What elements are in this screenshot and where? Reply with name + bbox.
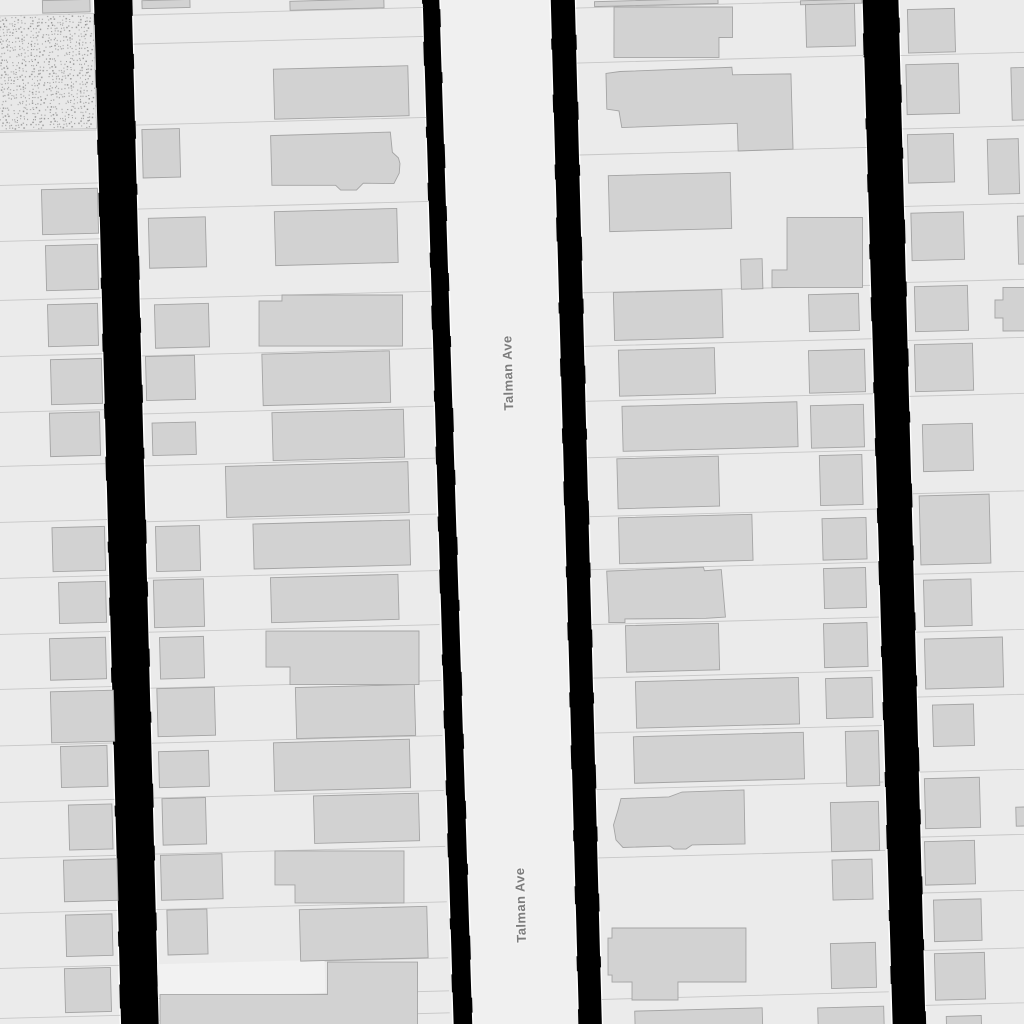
svg-text:Talman Ave: Talman Ave <box>499 335 516 410</box>
svg-text:Talman Ave: Talman Ave <box>512 867 529 942</box>
